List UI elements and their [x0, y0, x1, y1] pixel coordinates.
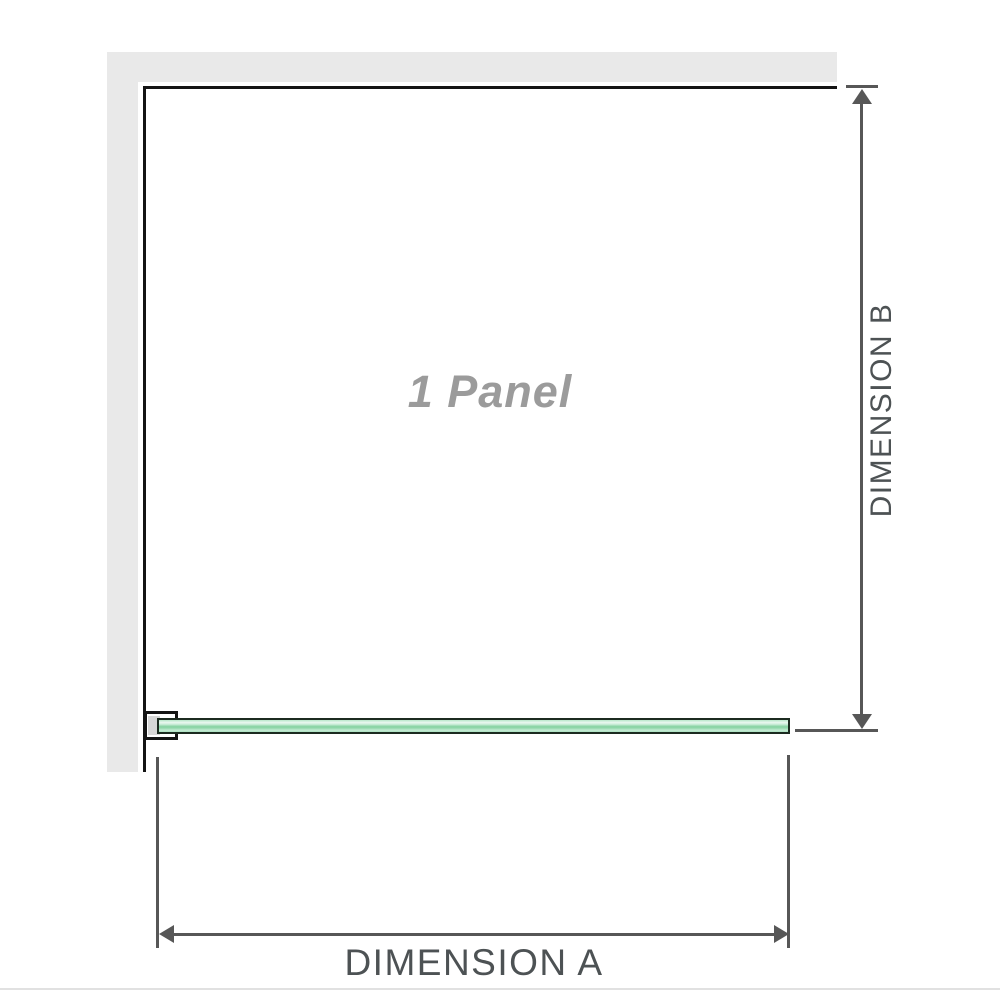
dimension-b-bottom-tick: [795, 729, 878, 732]
arrowhead-up-icon: [852, 89, 872, 104]
panel-left-edge-line: [143, 86, 146, 772]
dimension-a-right-extension-line: [787, 755, 790, 948]
glass-panel-top-view: [157, 718, 790, 734]
arrowhead-right-icon: [774, 925, 789, 943]
dimension-a-arrow-line: [168, 933, 780, 936]
bottom-separator-line: [0, 988, 1000, 990]
dimension-a-left-extension-line: [156, 757, 159, 948]
dimension-b-arrow-line: [860, 92, 863, 718]
wall-top-bar: [107, 52, 837, 82]
dimension-b-label: DIMENSION B: [865, 303, 899, 518]
arrowhead-left-icon: [159, 925, 174, 943]
shower-panel-diagram: 1 Panel DIMENSION B DIMENSION A: [0, 0, 1000, 1000]
panel-count-label: 1 Panel: [143, 366, 837, 418]
dimension-a-label: DIMENSION A: [158, 942, 790, 984]
panel-top-edge-line: [143, 86, 837, 89]
wall-left-bar: [107, 52, 138, 772]
dimension-b-top-tick: [846, 85, 878, 88]
arrowhead-down-icon: [852, 714, 872, 729]
